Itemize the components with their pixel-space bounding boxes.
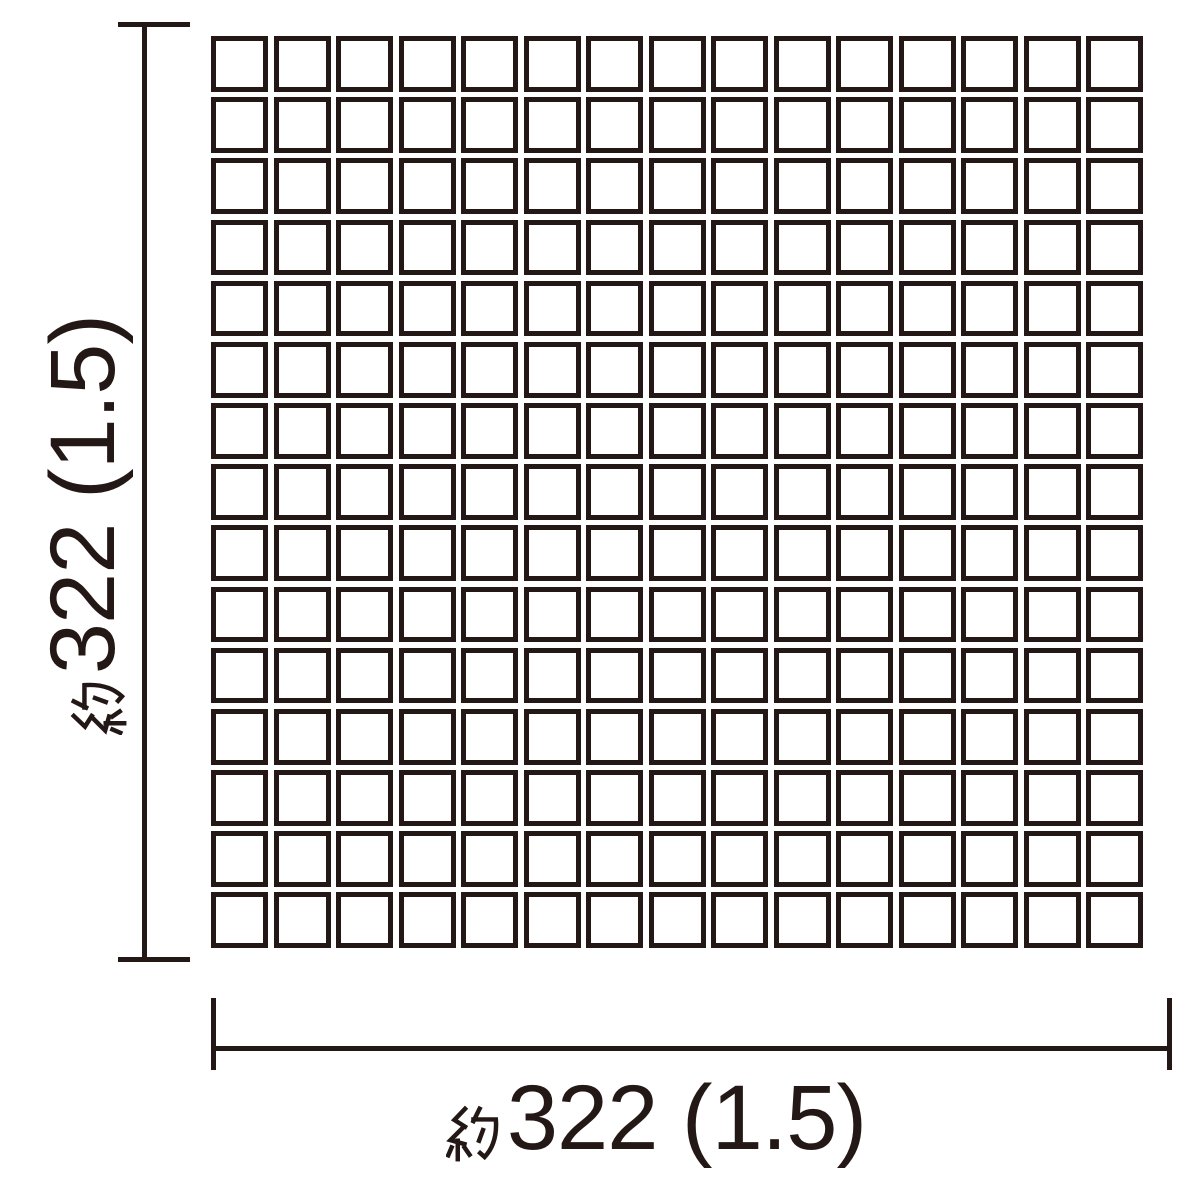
- mosaic-tile: [336, 648, 393, 704]
- mosaic-tile: [211, 464, 268, 520]
- mosaic-tile: [461, 220, 518, 276]
- mosaic-tile: [711, 587, 768, 643]
- mosaic-tile: [774, 892, 831, 948]
- mosaic-tile: [774, 220, 831, 276]
- mosaic-tile: [336, 892, 393, 948]
- mosaic-tile: [586, 281, 643, 337]
- width-dimension-tick-right: [1167, 998, 1172, 1070]
- mosaic-tile: [649, 158, 706, 214]
- mosaic-tile: [274, 892, 331, 948]
- width-dimension-value: 322 (1.5): [507, 1072, 866, 1164]
- width-dimension-label: 322 (1.5): [336, 1072, 976, 1166]
- mosaic-tile: [211, 281, 268, 337]
- mosaic-tile: [1024, 831, 1081, 887]
- mosaic-tile: [211, 342, 268, 398]
- mosaic-tile: [336, 831, 393, 887]
- mosaic-tile: [649, 770, 706, 826]
- mosaic-tile: [899, 220, 956, 276]
- mosaic-tile: [1024, 892, 1081, 948]
- mosaic-tile: [1086, 97, 1143, 153]
- mosaic-tile: [711, 36, 768, 92]
- mosaic-tile: [274, 464, 331, 520]
- mosaic-tile: [274, 587, 331, 643]
- mosaic-tile: [836, 220, 893, 276]
- mosaic-tile: [774, 36, 831, 92]
- mosaic-tile: [649, 525, 706, 581]
- mosaic-tile: [649, 648, 706, 704]
- mosaic-tile: [399, 281, 456, 337]
- mosaic-tile: [711, 220, 768, 276]
- mosaic-tile: [399, 892, 456, 948]
- mosaic-tile: [336, 464, 393, 520]
- mosaic-tile: [836, 587, 893, 643]
- mosaic-tile: [899, 770, 956, 826]
- mosaic-tile: [461, 770, 518, 826]
- mosaic-tile: [399, 648, 456, 704]
- mosaic-tile: [774, 281, 831, 337]
- mosaic-tile: [336, 709, 393, 765]
- mosaic-tile: [774, 648, 831, 704]
- mosaic-tile: [899, 525, 956, 581]
- mosaic-tile: [524, 342, 581, 398]
- mosaic-tile: [836, 892, 893, 948]
- mosaic-tile: [336, 403, 393, 459]
- mosaic-tile: [961, 770, 1018, 826]
- mosaic-tile: [774, 97, 831, 153]
- mosaic-tile: [899, 587, 956, 643]
- mosaic-tile: [1024, 158, 1081, 214]
- mosaic-tile: [274, 648, 331, 704]
- mosaic-tile: [774, 770, 831, 826]
- mosaic-tile: [961, 831, 1018, 887]
- mosaic-tile: [399, 464, 456, 520]
- mosaic-tile: [1086, 770, 1143, 826]
- mosaic-tile: [961, 587, 1018, 643]
- mosaic-tile: [899, 342, 956, 398]
- mosaic-tile: [399, 525, 456, 581]
- mosaic-tile: [461, 831, 518, 887]
- mosaic-tile: [649, 342, 706, 398]
- mosaic-tile: [211, 587, 268, 643]
- mosaic-tile: [274, 709, 331, 765]
- mosaic-tile: [899, 709, 956, 765]
- mosaic-tile: [524, 525, 581, 581]
- mosaic-tile: [274, 525, 331, 581]
- mosaic-tile: [524, 36, 581, 92]
- mosaic-tile: [211, 892, 268, 948]
- mosaic-tile: [274, 342, 331, 398]
- mosaic-tile: [586, 403, 643, 459]
- tile-dimension-diagram: 322 (1.5) 322 (1.5): [0, 0, 1200, 1200]
- mosaic-tile: [899, 464, 956, 520]
- mosaic-tile: [399, 36, 456, 92]
- mosaic-tile: [836, 97, 893, 153]
- mosaic-tile: [1086, 648, 1143, 704]
- mosaic-tile: [1024, 281, 1081, 337]
- mosaic-tile: [1086, 342, 1143, 398]
- mosaic-tile: [1086, 831, 1143, 887]
- mosaic-tile: [336, 36, 393, 92]
- mosaic-tile: [211, 220, 268, 276]
- mosaic-tile: [711, 97, 768, 153]
- mosaic-tile: [461, 281, 518, 337]
- mosaic-tile: [211, 770, 268, 826]
- mosaic-tile: [524, 587, 581, 643]
- mosaic-tile: [211, 648, 268, 704]
- mosaic-tile: [274, 220, 331, 276]
- mosaic-tile: [586, 770, 643, 826]
- mosaic-tile: [211, 709, 268, 765]
- mosaic-tile: [586, 342, 643, 398]
- mosaic-tile: [1086, 36, 1143, 92]
- mosaic-tile: [1024, 403, 1081, 459]
- mosaic-tile: [774, 831, 831, 887]
- mosaic-tile: [336, 770, 393, 826]
- mosaic-tile: [274, 770, 331, 826]
- mosaic-tile: [1086, 525, 1143, 581]
- mosaic-tile: [461, 403, 518, 459]
- mosaic-tile: [336, 587, 393, 643]
- mosaic-tile: [1024, 525, 1081, 581]
- mosaic-tile: [1024, 36, 1081, 92]
- mosaic-tile: [399, 97, 456, 153]
- mosaic-tile: [586, 158, 643, 214]
- mosaic-tile: [524, 770, 581, 826]
- mosaic-tile: [524, 464, 581, 520]
- mosaic-tile: [399, 709, 456, 765]
- mosaic-tile: [1024, 464, 1081, 520]
- mosaic-tile: [961, 342, 1018, 398]
- mosaic-tile: [711, 831, 768, 887]
- mosaic-tile: [336, 342, 393, 398]
- mosaic-tile: [836, 158, 893, 214]
- mosaic-tile: [399, 770, 456, 826]
- mosaic-tile: [399, 403, 456, 459]
- mosaic-tile: [1024, 709, 1081, 765]
- mosaic-tile: [461, 587, 518, 643]
- mosaic-tile: [461, 648, 518, 704]
- mosaic-tile: [711, 525, 768, 581]
- mosaic-tile: [1086, 464, 1143, 520]
- mosaic-tile: [899, 97, 956, 153]
- mosaic-tile: [586, 892, 643, 948]
- mosaic-tile: [711, 892, 768, 948]
- height-dimension-value: 322 (1.5): [37, 315, 129, 674]
- mosaic-tile: [1024, 342, 1081, 398]
- mosaic-tile: [899, 403, 956, 459]
- mosaic-tile: [961, 464, 1018, 520]
- mosaic-tile: [961, 158, 1018, 214]
- mosaic-tile: [1086, 158, 1143, 214]
- mosaic-tile: [399, 342, 456, 398]
- mosaic-tile: [524, 709, 581, 765]
- mosaic-tile: [1024, 770, 1081, 826]
- mosaic-tile: [336, 525, 393, 581]
- mosaic-tile: [336, 281, 393, 337]
- mosaic-tile: [649, 281, 706, 337]
- mosaic-tile: [586, 709, 643, 765]
- mosaic-tile: [711, 281, 768, 337]
- mosaic-tile: [524, 220, 581, 276]
- mosaic-tile: [399, 831, 456, 887]
- mosaic-tile: [774, 587, 831, 643]
- mosaic-tile: [461, 36, 518, 92]
- mosaic-tile: [711, 648, 768, 704]
- mosaic-tile: [649, 97, 706, 153]
- mosaic-tile: [211, 525, 268, 581]
- mosaic-tile: [836, 648, 893, 704]
- mosaic-tile: [1086, 892, 1143, 948]
- mosaic-tile: [211, 403, 268, 459]
- mosaic-tile: [211, 158, 268, 214]
- mosaic-tile: [211, 36, 268, 92]
- mosaic-tile: [336, 97, 393, 153]
- mosaic-tile: [711, 464, 768, 520]
- mosaic-tile: [211, 97, 268, 153]
- mosaic-tile: [586, 648, 643, 704]
- mosaic-tile: [274, 403, 331, 459]
- mosaic-tile: [586, 220, 643, 276]
- mosaic-tile: [1024, 220, 1081, 276]
- mosaic-tile: [461, 464, 518, 520]
- mosaic-tile: [961, 220, 1018, 276]
- mosaic-tile: [774, 342, 831, 398]
- mosaic-tile: [899, 36, 956, 92]
- mosaic-tile: [649, 831, 706, 887]
- mosaic-tile: [399, 158, 456, 214]
- kanji-yaku-glyph: [446, 1098, 502, 1170]
- mosaic-tile: [899, 281, 956, 337]
- mosaic-tile: [774, 464, 831, 520]
- mosaic-tile: [649, 403, 706, 459]
- mosaic-tile: [461, 892, 518, 948]
- mosaic-tile: [524, 281, 581, 337]
- mosaic-tile: [461, 97, 518, 153]
- mosaic-tile: [649, 220, 706, 276]
- mosaic-tile: [1024, 587, 1081, 643]
- height-dimension-tick-bottom: [118, 957, 190, 962]
- mosaic-tile: [399, 220, 456, 276]
- mosaic-tile: [399, 587, 456, 643]
- mosaic-tile: [336, 220, 393, 276]
- mosaic-tile: [961, 892, 1018, 948]
- mosaic-tile: [836, 709, 893, 765]
- mosaic-tile: [899, 648, 956, 704]
- mosaic-tile: [211, 831, 268, 887]
- height-dimension-tick-top: [118, 22, 190, 27]
- mosaic-tile: [1086, 587, 1143, 643]
- mosaic-tile: [961, 525, 1018, 581]
- mosaic-tile: [711, 342, 768, 398]
- mosaic-tile: [586, 525, 643, 581]
- mosaic-tile: [836, 342, 893, 398]
- mosaic-tile: [586, 97, 643, 153]
- mosaic-tile: [961, 403, 1018, 459]
- mosaic-tile: [461, 709, 518, 765]
- mosaic-tile: [961, 281, 1018, 337]
- mosaic-tile: [649, 709, 706, 765]
- mosaic-tile: [274, 97, 331, 153]
- mosaic-tile: [274, 831, 331, 887]
- mosaic-tile: [524, 97, 581, 153]
- mosaic-tile: [1086, 281, 1143, 337]
- mosaic-tile: [836, 831, 893, 887]
- mosaic-tile: [461, 525, 518, 581]
- mosaic-tile: [836, 403, 893, 459]
- mosaic-tile: [899, 158, 956, 214]
- mosaic-tile: [524, 403, 581, 459]
- mosaic-tile: [461, 158, 518, 214]
- mosaic-tile: [774, 158, 831, 214]
- mosaic-tile: [961, 648, 1018, 704]
- mosaic-tile: [274, 158, 331, 214]
- mosaic-tile: [836, 525, 893, 581]
- mosaic-tile: [711, 403, 768, 459]
- mosaic-tile: [961, 36, 1018, 92]
- mosaic-tile: [836, 36, 893, 92]
- mosaic-tile: [274, 281, 331, 337]
- mosaic-tile-grid: [211, 36, 1143, 948]
- mosaic-tile: [711, 709, 768, 765]
- mosaic-tile: [524, 158, 581, 214]
- width-dimension-tick-left: [211, 998, 216, 1070]
- mosaic-tile: [586, 831, 643, 887]
- width-dimension-line: [211, 1046, 1172, 1051]
- mosaic-tile: [1024, 97, 1081, 153]
- mosaic-tile: [1024, 648, 1081, 704]
- mosaic-tile: [961, 709, 1018, 765]
- height-dimension-label: 322 (1.5): [37, 315, 131, 735]
- mosaic-tile: [836, 770, 893, 826]
- mosaic-tile: [649, 464, 706, 520]
- mosaic-tile: [836, 464, 893, 520]
- mosaic-tile: [524, 648, 581, 704]
- mosaic-tile: [961, 97, 1018, 153]
- mosaic-tile: [836, 281, 893, 337]
- mosaic-tile: [586, 464, 643, 520]
- height-dimension-line: [142, 22, 147, 962]
- mosaic-tile: [586, 587, 643, 643]
- kanji-yaku-glyph: [63, 679, 135, 735]
- mosaic-tile: [524, 892, 581, 948]
- mosaic-tile: [524, 831, 581, 887]
- mosaic-tile: [649, 587, 706, 643]
- mosaic-tile: [649, 892, 706, 948]
- mosaic-tile: [336, 158, 393, 214]
- mosaic-tile: [649, 36, 706, 92]
- mosaic-tile: [711, 770, 768, 826]
- mosaic-tile: [1086, 220, 1143, 276]
- mosaic-tile: [774, 525, 831, 581]
- mosaic-tile: [586, 36, 643, 92]
- mosaic-tile: [461, 342, 518, 398]
- mosaic-tile: [1086, 709, 1143, 765]
- mosaic-tile: [899, 831, 956, 887]
- mosaic-tile: [774, 709, 831, 765]
- mosaic-tile: [711, 158, 768, 214]
- mosaic-tile: [774, 403, 831, 459]
- mosaic-tile: [1086, 403, 1143, 459]
- mosaic-tile: [899, 892, 956, 948]
- mosaic-tile: [274, 36, 331, 92]
